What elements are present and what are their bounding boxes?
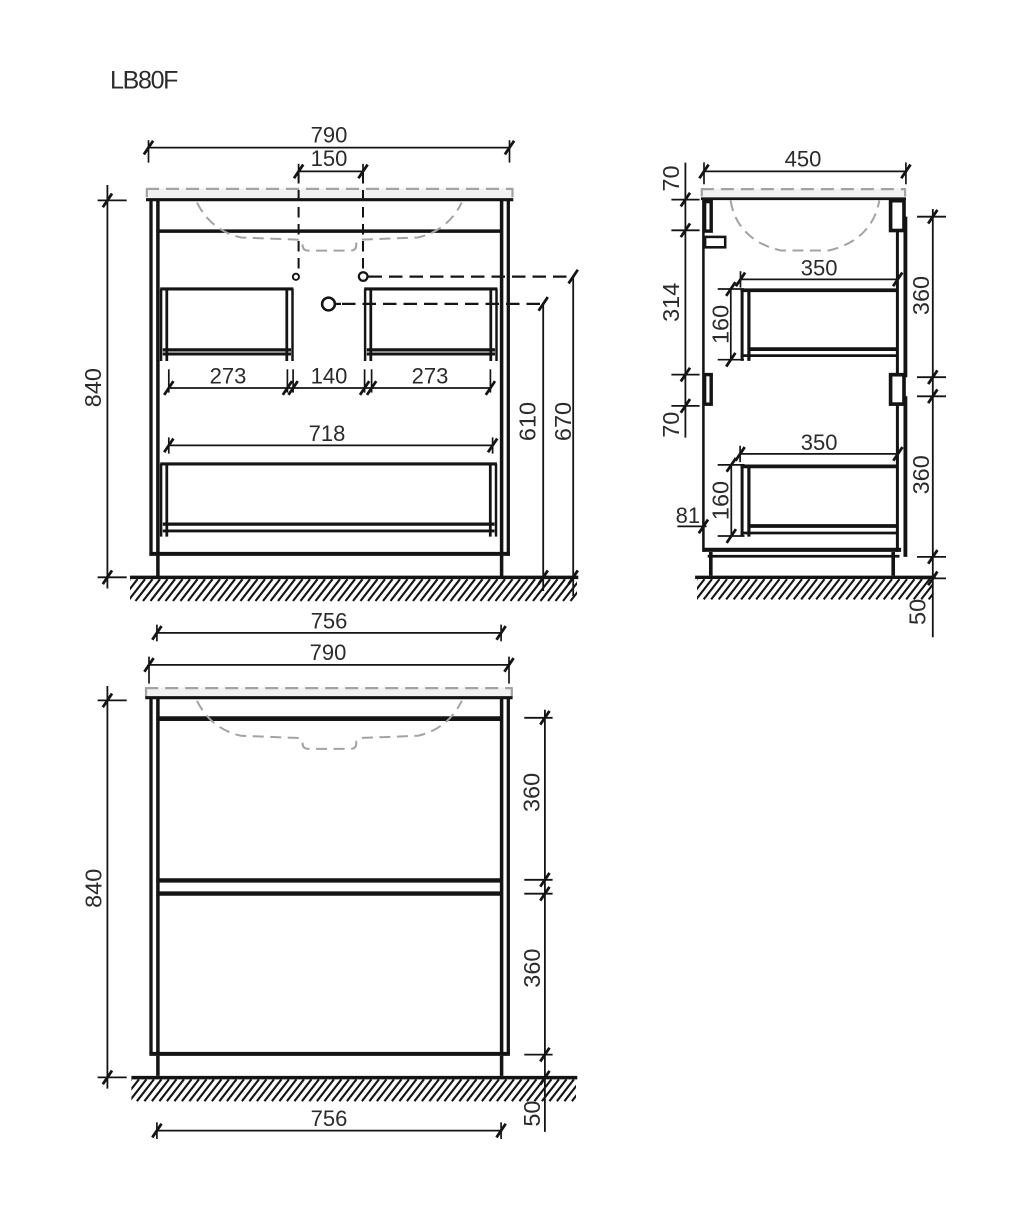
svg-text:756: 756 (311, 608, 348, 633)
svg-text:670: 670 (550, 402, 576, 441)
svg-text:610: 610 (515, 402, 541, 441)
svg-text:50: 50 (519, 1101, 545, 1127)
svg-text:840: 840 (80, 368, 106, 407)
svg-text:790: 790 (310, 640, 347, 665)
svg-text:160: 160 (708, 481, 734, 520)
svg-text:273: 273 (210, 363, 247, 388)
svg-text:160: 160 (707, 305, 733, 344)
svg-text:360: 360 (519, 948, 545, 987)
svg-text:140: 140 (311, 363, 348, 388)
svg-text:81: 81 (676, 503, 700, 528)
svg-text:756: 756 (311, 1106, 348, 1131)
svg-text:70: 70 (658, 165, 684, 191)
svg-text:70: 70 (658, 412, 684, 438)
svg-text:360: 360 (518, 773, 544, 812)
svg-text:350: 350 (801, 430, 838, 455)
svg-text:790: 790 (311, 123, 348, 148)
svg-text:LB80F: LB80F (110, 67, 178, 95)
svg-text:314: 314 (658, 283, 684, 322)
svg-text:350: 350 (801, 255, 838, 280)
svg-text:718: 718 (309, 421, 346, 446)
svg-text:273: 273 (412, 363, 449, 388)
svg-text:840: 840 (81, 869, 107, 908)
svg-text:360: 360 (908, 455, 934, 494)
svg-text:450: 450 (785, 147, 822, 172)
svg-text:150: 150 (311, 146, 348, 171)
svg-text:50: 50 (905, 599, 931, 625)
svg-text:360: 360 (908, 276, 934, 315)
